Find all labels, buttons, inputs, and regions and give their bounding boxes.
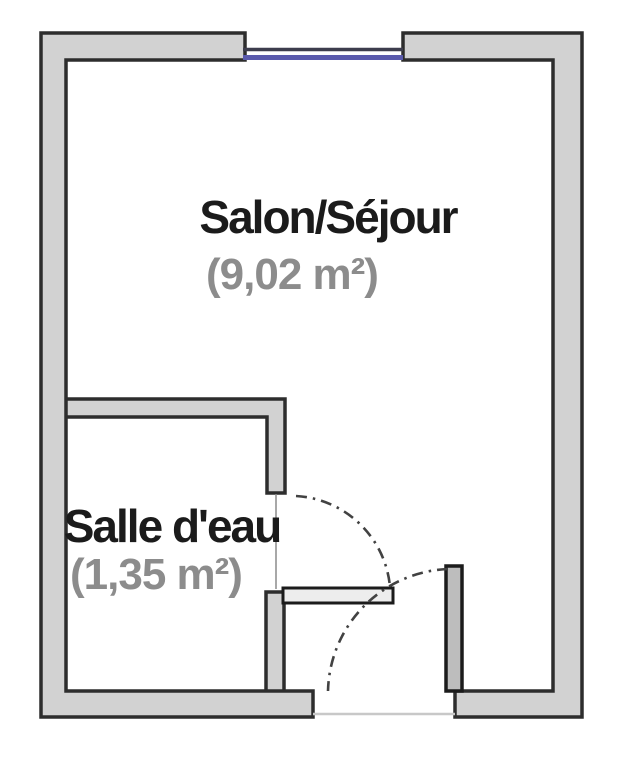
room-area-salon-sejour: (9,02 m²): [206, 250, 378, 299]
room-label-salle-deau: Salle d'eau: [64, 500, 281, 552]
floorplan-canvas: Salon/Séjour (9,02 m²) Salle d'eau (1,35…: [0, 0, 640, 777]
floorplan-drawing: Salon/Séjour (9,02 m²) Salle d'eau (1,35…: [0, 0, 640, 777]
room-area-salle-deau: (1,35 m²): [70, 550, 242, 599]
outer-wall-right-section: [403, 33, 582, 717]
entrance-door-leaf: [446, 566, 462, 691]
bathroom-door-swing-arc: [296, 496, 390, 587]
bathroom-partition-wall-top: [60, 399, 285, 493]
room-label-salon-sejour: Salon/Séjour: [199, 191, 458, 243]
bathroom-partition-wall-lower: [266, 592, 284, 700]
